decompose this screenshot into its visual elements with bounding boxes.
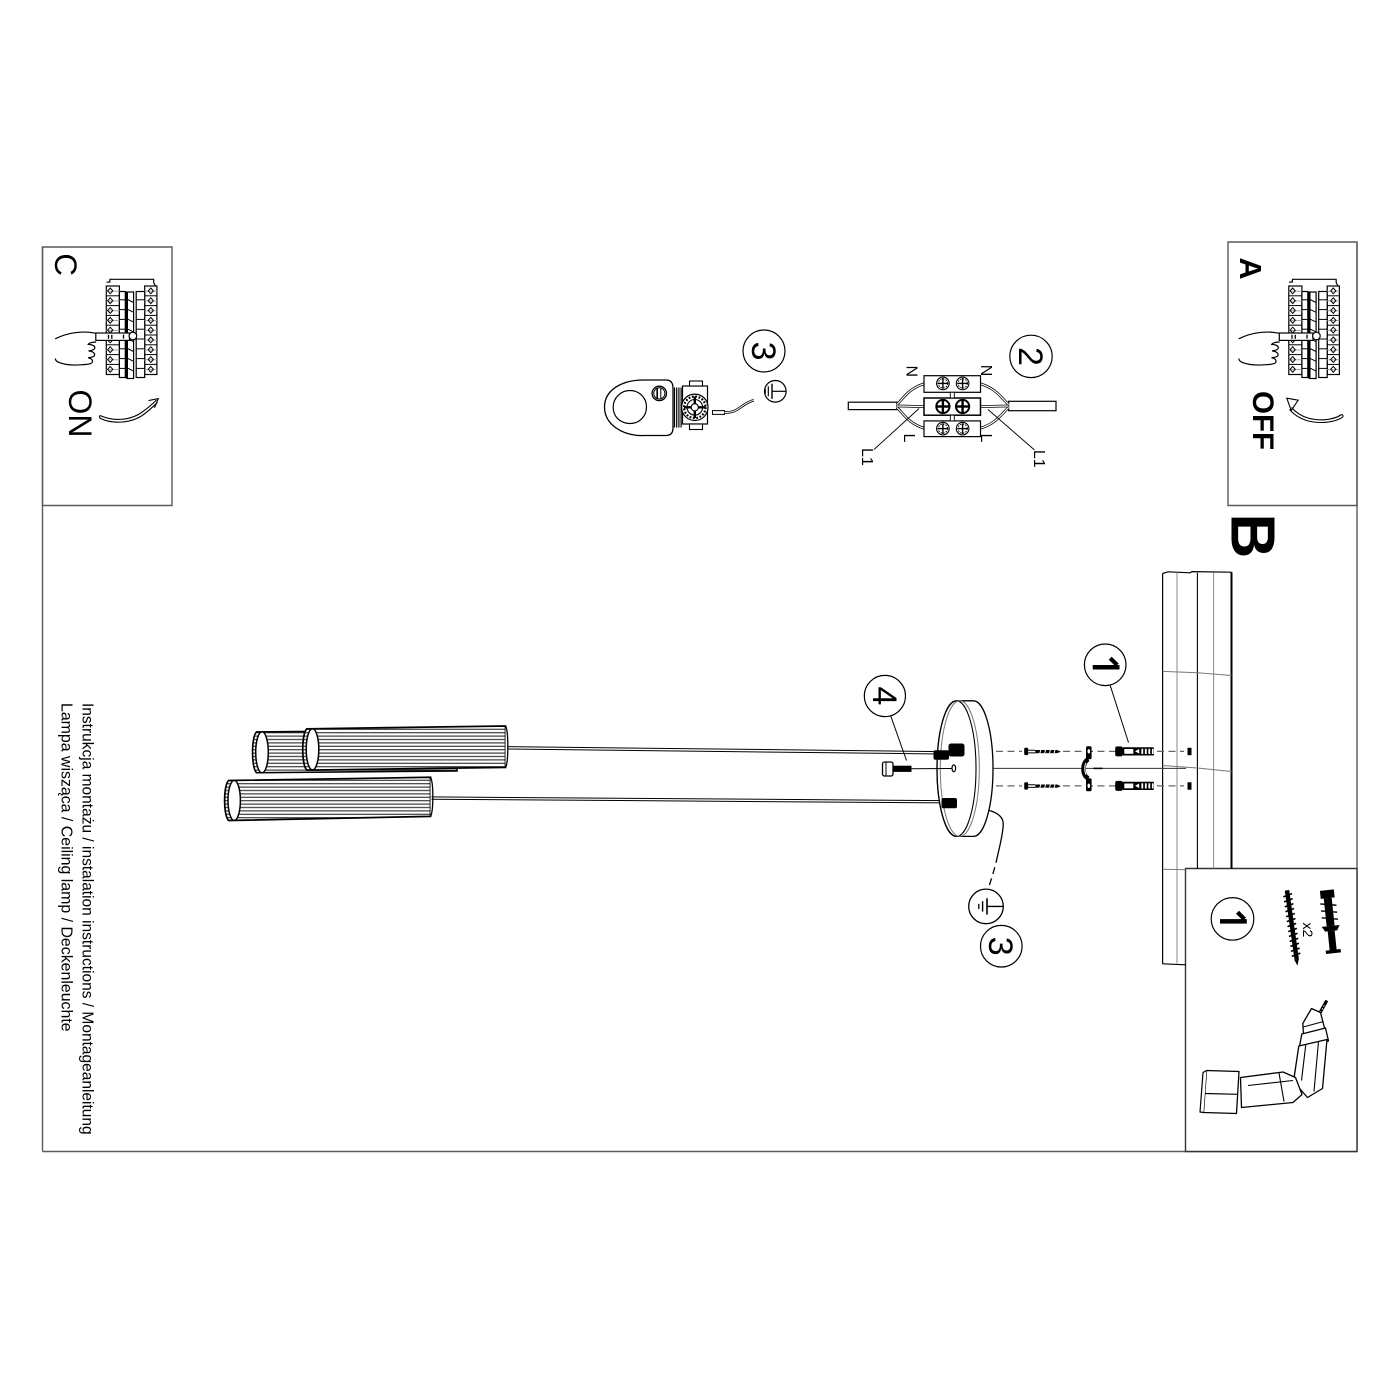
svg-text:x2: x2 bbox=[1300, 923, 1316, 938]
svg-text:L: L bbox=[977, 434, 994, 443]
svg-text:A: A bbox=[1233, 258, 1267, 280]
svg-text:L1: L1 bbox=[1030, 450, 1047, 468]
svg-text:L1: L1 bbox=[858, 448, 875, 466]
svg-text:3: 3 bbox=[981, 937, 1019, 956]
svg-text:N: N bbox=[903, 366, 920, 378]
svg-text:C: C bbox=[48, 253, 84, 276]
svg-text:4: 4 bbox=[865, 687, 903, 706]
svg-text:Instrukcja montażu / instalati: Instrukcja montażu / instalation instruc… bbox=[79, 703, 96, 1135]
svg-text:B: B bbox=[1218, 514, 1287, 559]
svg-text:N: N bbox=[977, 365, 994, 377]
svg-text:Lampa wisząca / Ceiling lamp /: Lampa wisząca / Ceiling lamp / Deckenleu… bbox=[58, 703, 75, 1032]
svg-text:OFF: OFF bbox=[1246, 391, 1279, 450]
svg-text:3: 3 bbox=[744, 342, 782, 361]
svg-text:L: L bbox=[900, 434, 917, 443]
svg-text:ON: ON bbox=[62, 390, 98, 438]
svg-text:2: 2 bbox=[1011, 347, 1049, 366]
